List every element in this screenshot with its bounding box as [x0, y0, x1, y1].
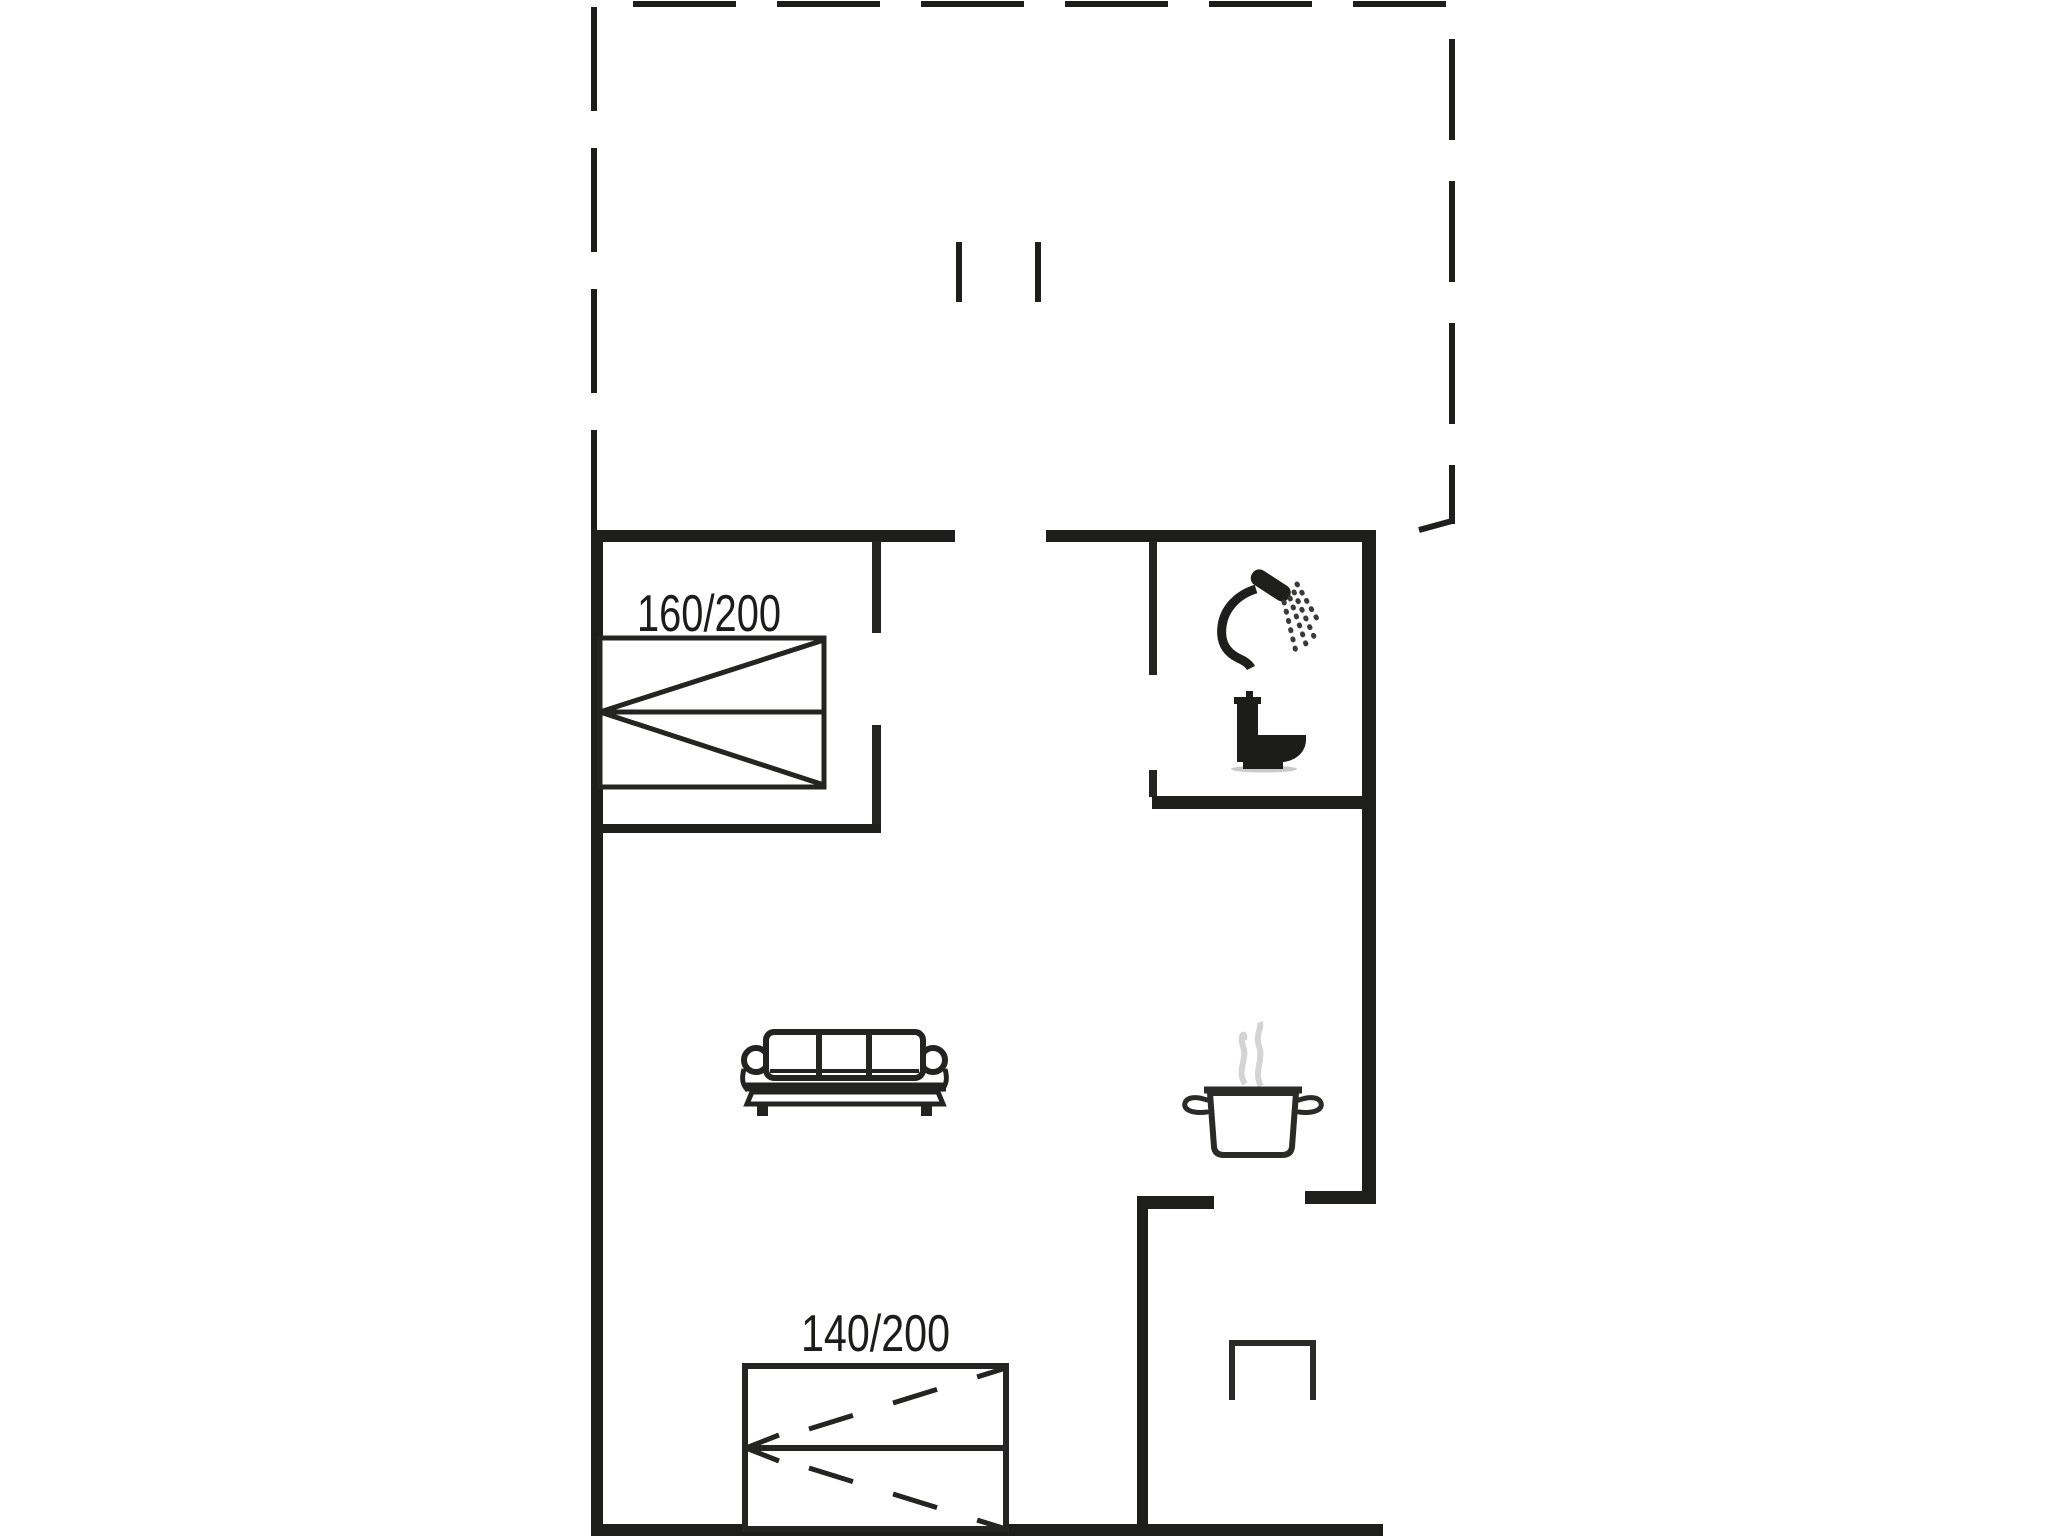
svg-text:160/200: 160/200: [637, 585, 781, 643]
svg-text:140/200: 140/200: [801, 1305, 950, 1363]
